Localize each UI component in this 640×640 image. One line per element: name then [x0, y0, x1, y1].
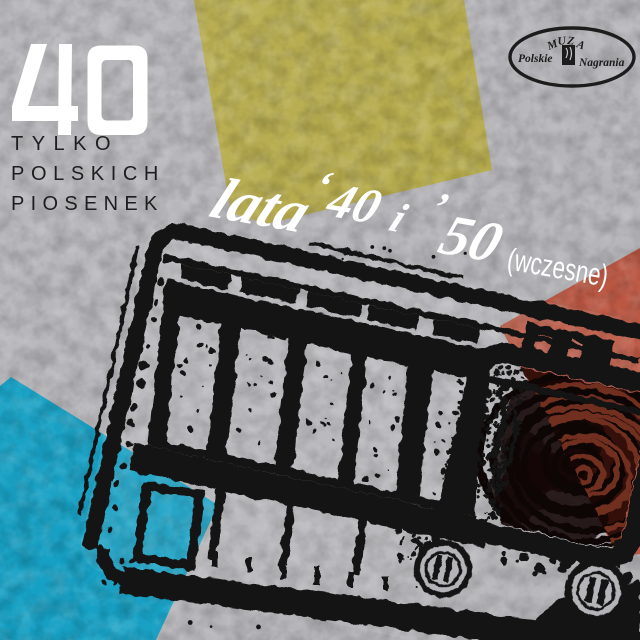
svg-text:TYLKO: TYLKO [11, 133, 119, 155]
svg-text:POLSKICH: POLSKICH [11, 163, 165, 185]
svg-text:PIOSENEK: PIOSENEK [11, 193, 164, 215]
svg-text:Polskie: Polskie [518, 53, 553, 65]
svg-text:Nagrania: Nagrania [578, 57, 625, 69]
